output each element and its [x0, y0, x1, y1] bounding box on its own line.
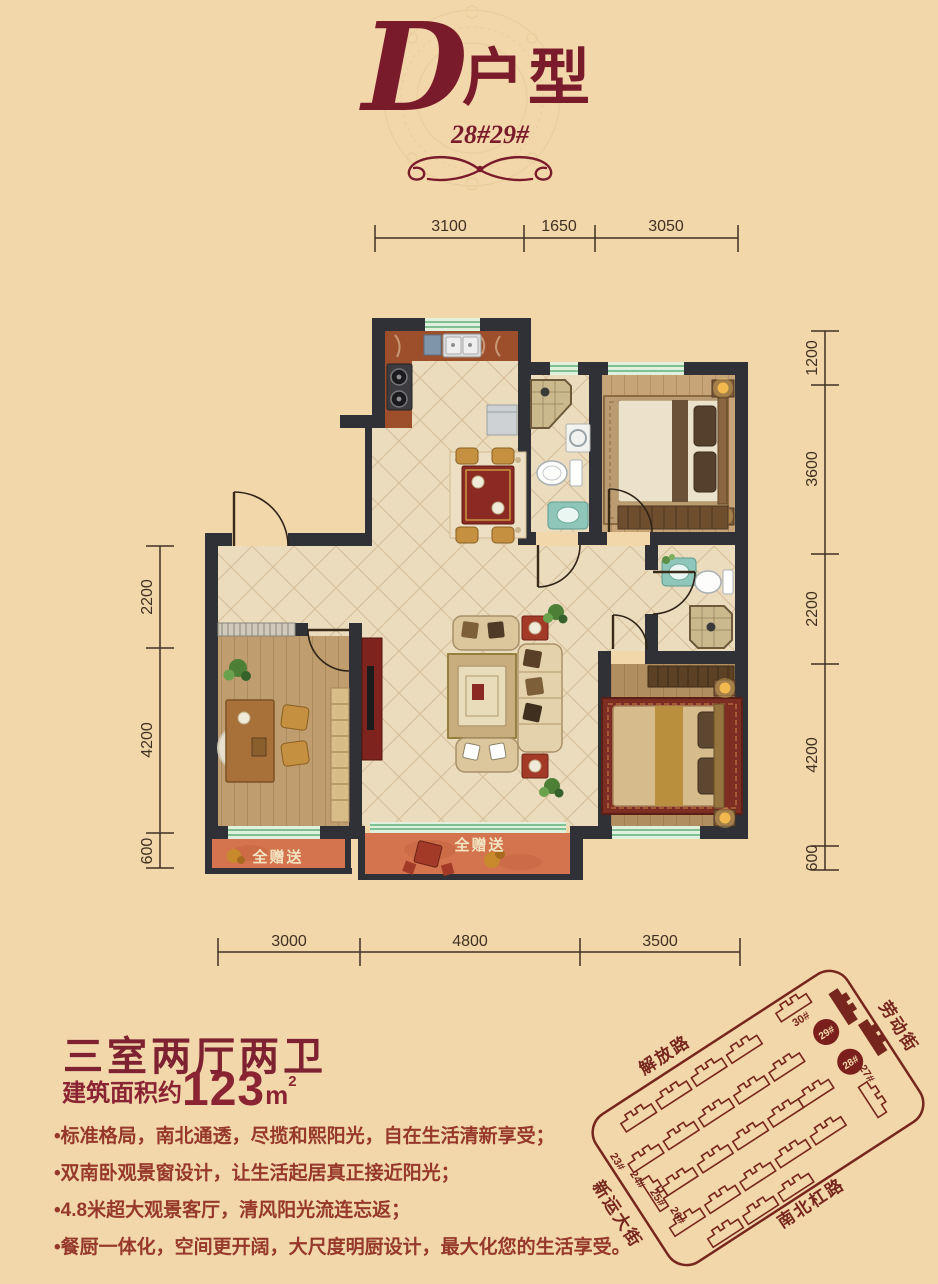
- dim-left-3: 600: [139, 838, 156, 865]
- dim-right-1: 1200: [804, 340, 821, 376]
- window-bedroom-2: [608, 362, 684, 375]
- floorplan-poster: { "page": { "bg": "#f2d7ab", "accent": "…: [0, 0, 938, 1284]
- dim-right-5: 600: [804, 845, 821, 872]
- stove: [387, 364, 412, 410]
- dim-right-3: 2200: [804, 591, 821, 627]
- dim-left-2: 4200: [139, 722, 156, 758]
- building-26-label: 26#: [667, 1205, 687, 1227]
- feature-item-4: •餐厨一体化，空间更开阔，大尺度明厨设计，最大化您的生活享受。: [54, 1229, 631, 1266]
- window-study: [228, 826, 320, 839]
- gift-label-left: 全赠送: [251, 848, 303, 866]
- window-kitchen: [425, 318, 480, 331]
- dim-right-4: 4200: [804, 737, 821, 773]
- area-superscript: 2: [288, 1074, 296, 1111]
- feature-item-1: •标准格局，南北通透，尽揽和熙阳光，自在生活清新享受；: [54, 1118, 631, 1155]
- window-bath-1: [550, 362, 578, 375]
- gift-label-center: 全赠送: [453, 836, 505, 854]
- dim-bottom-3: 3500: [642, 933, 678, 950]
- feature-item-3: •4.8米超大观景客厅，清风阳光流连忘返；: [54, 1192, 631, 1229]
- building-numbers-subtitle: 28#29#: [410, 120, 570, 150]
- radiator: [218, 623, 295, 636]
- unit-letter: D: [362, 6, 468, 128]
- dim-right-2: 3600: [804, 451, 821, 487]
- dim-bottom-2: 4800: [452, 933, 488, 950]
- feature-item-2: •双南卧观景窗设计，让生活起居真正接近阳光；: [54, 1155, 631, 1192]
- bedroom-2: [604, 378, 734, 529]
- area-prefix: 建筑面积约: [62, 1081, 182, 1111]
- area-unit: m: [265, 1081, 288, 1112]
- floor-plan: 全赠送 全赠送 3100 1650 3050 3000 4800 3500 22…: [130, 195, 850, 995]
- dim-top-3: 3050: [648, 218, 684, 235]
- window-master: [612, 826, 700, 839]
- feature-list: •标准格局，南北通透，尽揽和熙阳光，自在生活清新享受； •双南卧观景窗设计，让生…: [54, 1118, 631, 1266]
- kitchen-sink: [443, 334, 481, 357]
- unit-type-label: 户型: [462, 48, 594, 110]
- dim-left-1: 2200: [139, 579, 156, 615]
- area-value: 123: [182, 1068, 265, 1111]
- dining-set: [450, 448, 526, 543]
- fridge: [487, 405, 517, 435]
- dim-bottom-1: 3000: [271, 933, 307, 950]
- street-jiefang-road: 解放路: [635, 1031, 694, 1079]
- window-living-balcony: [370, 822, 566, 833]
- entry-door: [234, 492, 288, 546]
- dim-top-2: 1650: [541, 218, 577, 235]
- highlighted-buildings: [829, 982, 891, 1060]
- building-23-label: 23#: [607, 1151, 627, 1173]
- flourish-divider-icon: [380, 148, 580, 192]
- building-30-label: 30#: [790, 1009, 812, 1029]
- area-line: 建筑面积约123m2: [62, 1068, 297, 1111]
- dim-top-1: 3100: [431, 218, 467, 235]
- site-map: 29# 28# 30# 27# 23# 24# 25# 26# 解放路 劳动街 …: [572, 952, 938, 1284]
- dish-rack: [424, 335, 441, 355]
